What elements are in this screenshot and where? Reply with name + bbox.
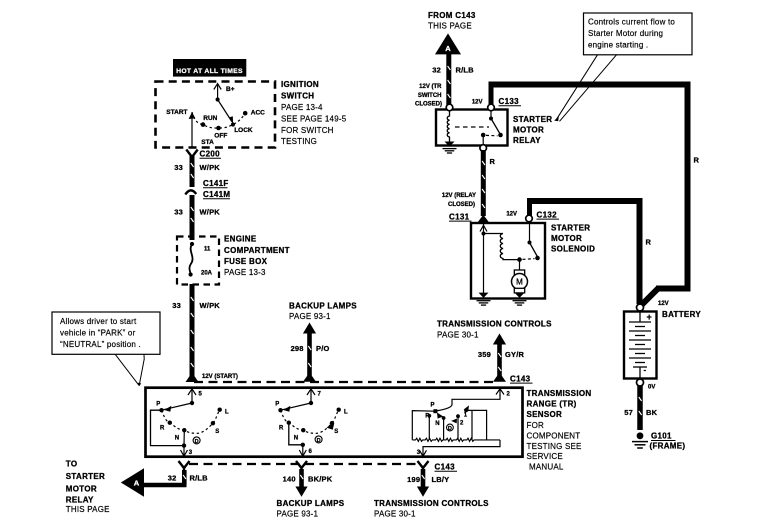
svg-text:CLOSED): CLOSED) bbox=[448, 202, 475, 208]
svg-text:LB/Y: LB/Y bbox=[432, 475, 450, 484]
svg-text:R/LB: R/LB bbox=[190, 473, 209, 482]
svg-text:Controls current flow to: Controls current flow to bbox=[588, 18, 675, 27]
svg-text:BK: BK bbox=[646, 408, 658, 417]
svg-text:FOR SWITCH: FOR SWITCH bbox=[281, 126, 334, 135]
svg-text:N: N bbox=[435, 421, 439, 427]
svg-text:33: 33 bbox=[174, 207, 183, 216]
svg-text:MOTOR: MOTOR bbox=[66, 485, 97, 494]
svg-text:L: L bbox=[344, 410, 348, 416]
svg-text:D: D bbox=[448, 426, 452, 432]
svg-text:+: + bbox=[647, 312, 652, 322]
svg-text:140: 140 bbox=[283, 474, 296, 483]
svg-text:SERVICE: SERVICE bbox=[527, 452, 563, 461]
svg-text:MANUAL: MANUAL bbox=[529, 463, 564, 472]
svg-text:57: 57 bbox=[624, 408, 633, 417]
svg-text:SOLENOID: SOLENOID bbox=[551, 244, 595, 253]
svg-text:engine starting .: engine starting . bbox=[588, 41, 648, 50]
svg-text:C200: C200 bbox=[200, 150, 221, 159]
svg-text:W/PK: W/PK bbox=[200, 207, 221, 216]
svg-text:RELAY: RELAY bbox=[513, 136, 541, 145]
svg-text:HOT AT ALL TIMES: HOT AT ALL TIMES bbox=[176, 68, 243, 75]
svg-text:FOR: FOR bbox=[527, 421, 545, 430]
svg-text:THIS PAGE: THIS PAGE bbox=[66, 505, 110, 514]
svg-text:Allows driver to start: Allows driver to start bbox=[60, 317, 137, 326]
svg-text:BK/PK: BK/PK bbox=[308, 474, 333, 483]
svg-text:PAGE 93-1: PAGE 93-1 bbox=[289, 312, 331, 321]
svg-text:12V (START): 12V (START) bbox=[202, 374, 238, 380]
svg-text:BACKUP LAMPS: BACKUP LAMPS bbox=[289, 302, 357, 311]
svg-text:W/PK: W/PK bbox=[200, 163, 221, 172]
svg-text:SWITCH: SWITCH bbox=[418, 93, 442, 99]
svg-text:SWITCH: SWITCH bbox=[281, 92, 314, 101]
svg-text:STARTER: STARTER bbox=[551, 224, 590, 233]
svg-text:MOTOR: MOTOR bbox=[513, 126, 544, 135]
svg-text:LOCK: LOCK bbox=[234, 127, 253, 134]
svg-text:W/PK: W/PK bbox=[200, 301, 221, 310]
svg-text:STARTER: STARTER bbox=[66, 472, 105, 481]
svg-text:33: 33 bbox=[172, 301, 181, 310]
svg-text:32: 32 bbox=[432, 65, 441, 74]
svg-text:TESTING: TESTING bbox=[281, 137, 317, 146]
svg-text:C143: C143 bbox=[435, 463, 456, 472]
svg-text:PAGE 30-1: PAGE 30-1 bbox=[437, 331, 479, 340]
svg-text:L: L bbox=[225, 410, 229, 416]
svg-text:Starter Motor during: Starter Motor during bbox=[588, 29, 663, 38]
svg-text:MOTOR: MOTOR bbox=[551, 234, 582, 243]
svg-text:11: 11 bbox=[204, 247, 211, 253]
svg-text:SEE PAGE 149-5: SEE PAGE 149-5 bbox=[281, 115, 347, 124]
svg-text:12V: 12V bbox=[506, 212, 517, 218]
svg-text:COMPARTMENT: COMPARTMENT bbox=[224, 246, 290, 255]
svg-text:C132: C132 bbox=[537, 210, 558, 219]
svg-text:RANGE (TR): RANGE (TR) bbox=[527, 400, 577, 409]
svg-text:C141M: C141M bbox=[203, 190, 230, 199]
svg-text:THIS PAGE: THIS PAGE bbox=[428, 22, 472, 31]
svg-text:COMPONENT: COMPONENT bbox=[527, 432, 581, 441]
svg-text:A: A bbox=[134, 479, 140, 488]
svg-text:R: R bbox=[279, 425, 284, 431]
svg-text:M: M bbox=[516, 278, 523, 287]
svg-text:0V: 0V bbox=[648, 385, 655, 391]
svg-text:359: 359 bbox=[478, 350, 491, 359]
svg-text:199: 199 bbox=[407, 475, 420, 484]
svg-text:FROM C143: FROM C143 bbox=[428, 11, 476, 20]
svg-text:A: A bbox=[445, 44, 451, 53]
svg-text:G101: G101 bbox=[651, 432, 672, 441]
svg-text:S: S bbox=[215, 429, 219, 435]
svg-text:12V: 12V bbox=[472, 100, 483, 106]
svg-text:12V (RELAY: 12V (RELAY bbox=[442, 193, 476, 199]
svg-text:298: 298 bbox=[291, 344, 304, 353]
svg-text:ACC: ACC bbox=[251, 110, 265, 117]
svg-text:R: R bbox=[646, 238, 652, 247]
svg-text:STARTER: STARTER bbox=[513, 115, 552, 124]
svg-text:TRANSMISSION: TRANSMISSION bbox=[527, 389, 592, 398]
svg-text:S: S bbox=[334, 429, 338, 435]
svg-text:P: P bbox=[431, 403, 435, 409]
svg-text:TRANSMISSION CONTROLS: TRANSMISSION CONTROLS bbox=[437, 320, 552, 329]
svg-text:D: D bbox=[195, 439, 199, 445]
svg-text:IGNITION: IGNITION bbox=[281, 80, 319, 89]
svg-text:vehicle in “PARK” or: vehicle in “PARK” or bbox=[60, 329, 136, 338]
svg-text:GY/R: GY/R bbox=[505, 350, 525, 359]
svg-text:PAGE 13-4: PAGE 13-4 bbox=[281, 103, 323, 112]
svg-text:SENSOR: SENSOR bbox=[527, 410, 563, 419]
svg-text:R/LB: R/LB bbox=[456, 65, 475, 74]
svg-text:R: R bbox=[160, 425, 165, 431]
svg-text:12V: 12V bbox=[658, 301, 669, 307]
svg-text:BACKUP LAMPS: BACKUP LAMPS bbox=[277, 499, 345, 508]
svg-text:C141F: C141F bbox=[203, 179, 229, 188]
svg-text:RELAY: RELAY bbox=[66, 496, 94, 505]
svg-text:C133: C133 bbox=[499, 97, 520, 106]
svg-text:PAGE 93-1: PAGE 93-1 bbox=[277, 510, 319, 519]
svg-text:BATTERY: BATTERY bbox=[662, 310, 701, 319]
svg-text:R: R bbox=[694, 156, 700, 165]
svg-text:N: N bbox=[294, 435, 298, 441]
svg-text:TO: TO bbox=[66, 460, 78, 469]
svg-text:PAGE 30-1: PAGE 30-1 bbox=[374, 510, 416, 519]
svg-text:C143: C143 bbox=[510, 374, 531, 383]
svg-text:CLOSED): CLOSED) bbox=[415, 102, 442, 108]
svg-text:B+: B+ bbox=[226, 86, 235, 93]
svg-text:OFF: OFF bbox=[214, 133, 227, 140]
svg-text:TESTING SEE: TESTING SEE bbox=[527, 442, 582, 451]
svg-text:R: R bbox=[490, 157, 496, 166]
svg-text:START: START bbox=[166, 109, 187, 116]
svg-text:20A: 20A bbox=[201, 271, 213, 277]
svg-text:TRANSMISSION CONTROLS: TRANSMISSION CONTROLS bbox=[374, 499, 489, 508]
svg-text:(FRAME): (FRAME) bbox=[650, 441, 686, 450]
svg-text:“NEUTRAL” position .: “NEUTRAL” position . bbox=[60, 340, 141, 349]
svg-text:RUN: RUN bbox=[203, 115, 217, 122]
svg-text:12V (TR: 12V (TR bbox=[419, 84, 442, 90]
svg-text:ENGINE: ENGINE bbox=[224, 235, 257, 244]
svg-text:R: R bbox=[425, 413, 430, 419]
svg-text:PAGE 13-3: PAGE 13-3 bbox=[224, 268, 266, 277]
svg-text:C131: C131 bbox=[449, 212, 470, 221]
svg-text:FUSE BOX: FUSE BOX bbox=[224, 257, 268, 266]
svg-text:STA: STA bbox=[201, 139, 214, 146]
svg-text:P: P bbox=[275, 402, 279, 408]
svg-text:33: 33 bbox=[174, 163, 183, 172]
svg-text:32: 32 bbox=[168, 473, 177, 482]
svg-text:-: - bbox=[644, 366, 647, 375]
svg-text:D: D bbox=[317, 438, 321, 444]
svg-text:N: N bbox=[175, 435, 179, 441]
svg-text:P: P bbox=[156, 402, 160, 408]
svg-text:P/O: P/O bbox=[316, 344, 330, 353]
